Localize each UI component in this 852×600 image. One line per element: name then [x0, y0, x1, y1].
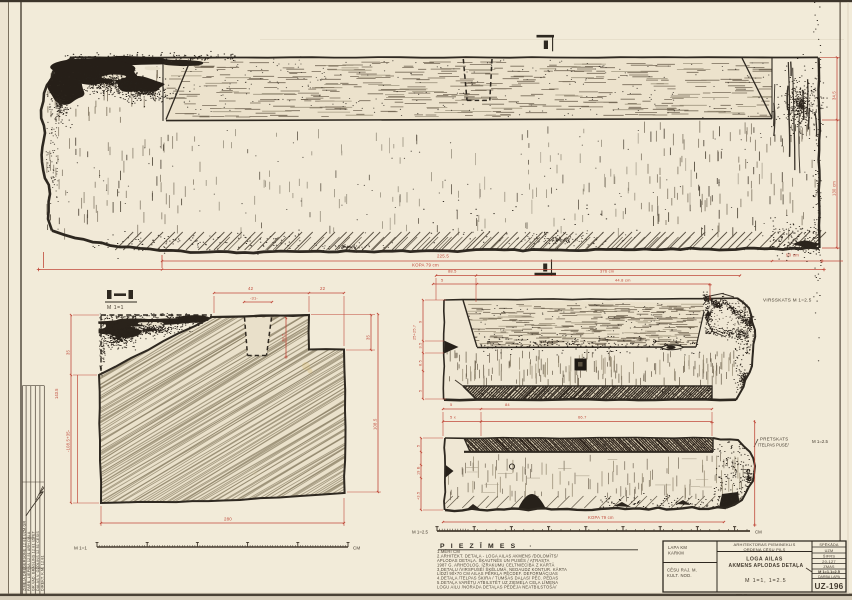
svg-text:+3.5: +3.5	[417, 492, 421, 500]
svg-text:34.5: 34.5	[832, 91, 837, 100]
svg-text:M 1=1.1=2.5: M 1=1.1=2.5	[818, 569, 841, 574]
svg-text:-108.5+35-: -108.5+35-	[66, 429, 71, 452]
svg-text:225.5: 225.5	[437, 254, 449, 259]
svg-text:UZM: UZM	[825, 549, 834, 553]
svg-text:M 1=1, 1=2.5: M 1=1, 1=2.5	[745, 578, 786, 584]
svg-text:44.8 cm: 44.8 cm	[615, 277, 631, 282]
svg-text:KARKM: KARKM	[668, 551, 684, 556]
svg-text:130 cm: 130 cm	[832, 181, 837, 196]
svg-text:M 1=2.5: M 1=2.5	[412, 530, 429, 535]
svg-text:DIREKT. K.M. 12.81: DIREKT. K.M. 12.81	[41, 555, 45, 591]
svg-text:90 cm: 90 cm	[786, 253, 799, 258]
svg-text:280: 280	[224, 517, 232, 522]
svg-text:9: 9	[419, 321, 423, 323]
svg-text:SPĒKĀDA: SPĒKĀDA	[819, 543, 839, 547]
svg-text:M 1=1: M 1=1	[107, 305, 124, 311]
svg-text:42: 42	[248, 286, 254, 291]
svg-text:LOGA AILAS: LOGA AILAS	[746, 557, 783, 563]
svg-text:PRETSKATS: PRETSKATS	[760, 437, 788, 442]
svg-text:PARB. LIEPINA 12.81 ARH.DALA: PARB. LIEPINA 12.81 ARH.DALA	[27, 531, 31, 591]
svg-text:22: 22	[320, 286, 326, 291]
svg-text:5: 5	[419, 390, 423, 392]
svg-text:35: 35	[366, 334, 371, 340]
svg-text:88.5: 88.5	[448, 269, 457, 274]
svg-text:DARBA LAPA: DARBA LAPA	[818, 575, 841, 579]
svg-text:5 x: 5 x	[450, 415, 456, 420]
svg-text:ORDEŅA CĒSU PILS: ORDEŅA CĒSU PILS	[743, 547, 785, 552]
svg-text:AKMENS APLODAS DETAĻA: AKMENS APLODAS DETAĻA	[729, 563, 804, 569]
svg-text:35: 35	[66, 349, 71, 355]
svg-text:M 1=1: M 1=1	[74, 546, 87, 551]
svg-text:UZ-196: UZ-196	[814, 582, 843, 591]
svg-text:/TELPAS PUSE/: /TELPAS PUSE/	[758, 443, 789, 448]
svg-text:19 B: 19 B	[417, 466, 421, 475]
svg-text:ZIMEJA DREGERSONE 12.81 UZM.GR: ZIMEJA DREGERSONE 12.81 UZM.GR	[22, 520, 26, 591]
svg-text:108.5: 108.5	[373, 418, 378, 430]
svg-text:ŠIFRS: ŠIFRS	[823, 553, 835, 558]
svg-text:LOGU AILU /NORĀDA DETAĻAS PĒDĒ: LOGU AILU /NORĀDA DETAĻAS PĒDĒJA NEATBIL…	[437, 584, 557, 589]
svg-text:376 cm: 376 cm	[600, 269, 615, 274]
svg-text:KOPA 79 cm: KOPA 79 cm	[588, 515, 614, 520]
svg-text:3.5: 3.5	[419, 343, 423, 349]
svg-text:CM: CM	[353, 546, 360, 551]
svg-text:CM: CM	[755, 530, 762, 535]
svg-text:66.7: 66.7	[578, 415, 587, 420]
svg-text:CĒSU RAJ. M.: CĒSU RAJ. M.	[667, 568, 697, 573]
svg-text:143.5: 143.5	[54, 388, 59, 399]
svg-text:KOPA 79 cm: KOPA 79 cm	[412, 263, 439, 268]
svg-text:8.5: 8.5	[419, 360, 423, 366]
svg-text:KULT. NOD.: KULT. NOD.	[667, 573, 692, 578]
svg-text:5: 5	[417, 445, 421, 447]
svg-text:20-127: 20-127	[822, 559, 836, 564]
svg-text:38.5: 38.5	[281, 333, 286, 342]
svg-text:84: 84	[505, 402, 510, 407]
svg-text:VIRSSKATS M 1=2.5: VIRSSKATS M 1=2.5	[763, 298, 812, 303]
svg-text:GR.VAD. BRASLINS 12.81 IZPET: GR.VAD. BRASLINS 12.81 IZPET	[32, 530, 36, 591]
svg-text:DALAS V. OZOLINS 12.81 CESIS: DALAS V. OZOLINS 12.81 CESIS	[36, 531, 40, 591]
svg-text:-31-: -31-	[250, 296, 258, 301]
svg-text:25+25.7: 25+25.7	[413, 325, 417, 340]
svg-text:M 1=2.5: M 1=2.5	[812, 439, 829, 444]
svg-text:LAPA KM: LAPA KM	[668, 545, 687, 550]
